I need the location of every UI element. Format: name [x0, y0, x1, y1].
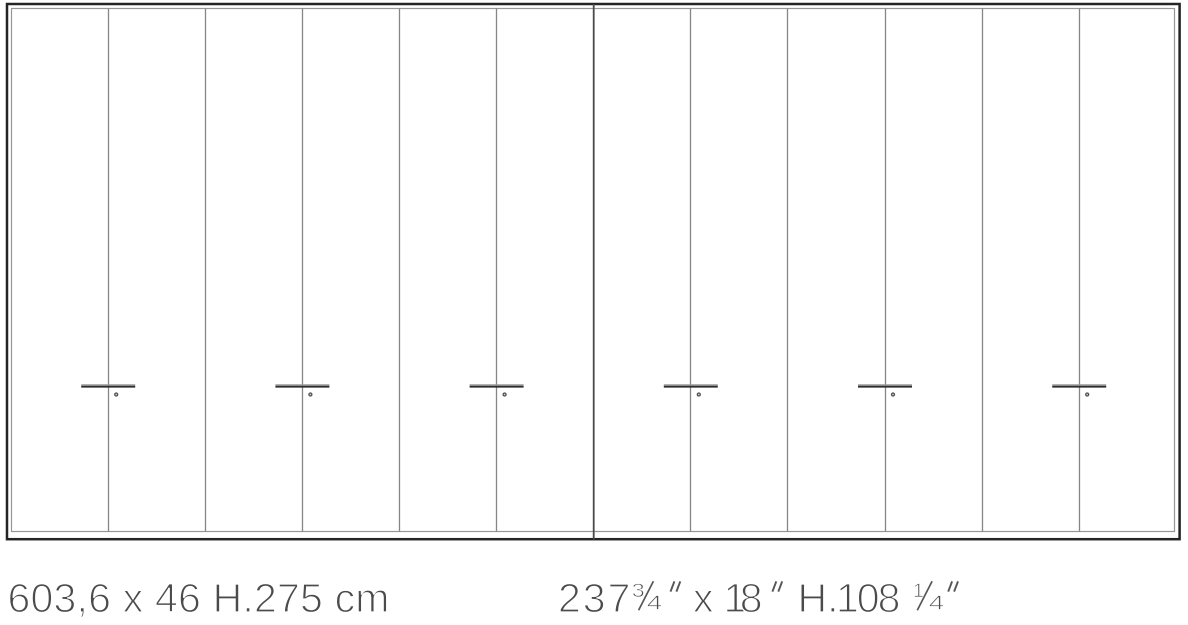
- svg-text:4: 4: [929, 591, 945, 614]
- svg-text:x: x: [693, 575, 714, 621]
- svg-text:603,6 x 46 H.275 cm: 603,6 x 46 H.275 cm: [8, 575, 390, 621]
- svg-text:H.: H.: [798, 575, 839, 621]
- svg-text:4: 4: [647, 591, 663, 614]
- svg-text:237: 237: [558, 575, 632, 621]
- svg-text:8: 8: [740, 575, 763, 621]
- svg-text:108: 108: [836, 575, 900, 621]
- svg-text:3: 3: [632, 580, 645, 602]
